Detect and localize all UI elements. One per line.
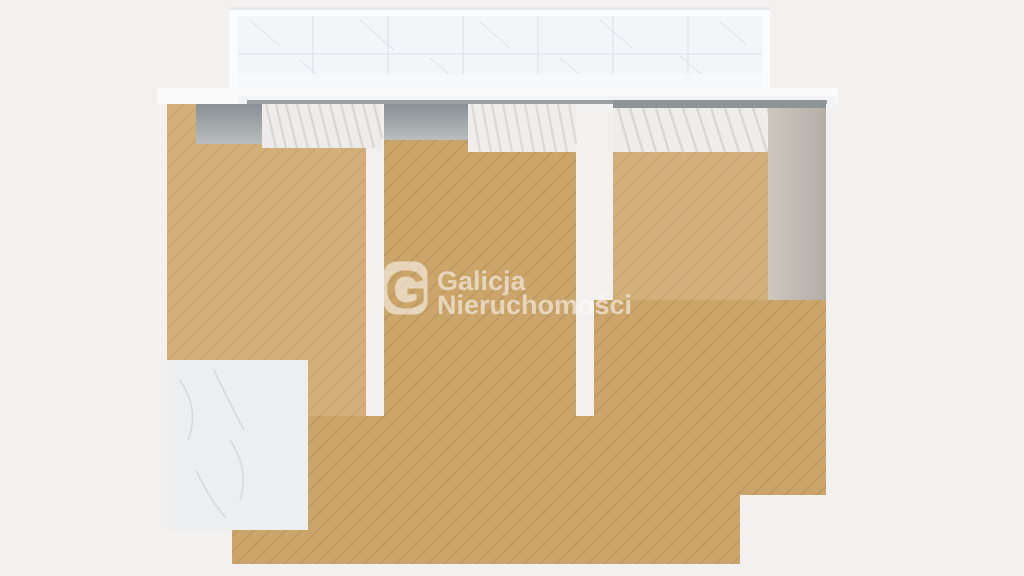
svg-text:Nieruchomości: Nieruchomości bbox=[437, 290, 632, 320]
